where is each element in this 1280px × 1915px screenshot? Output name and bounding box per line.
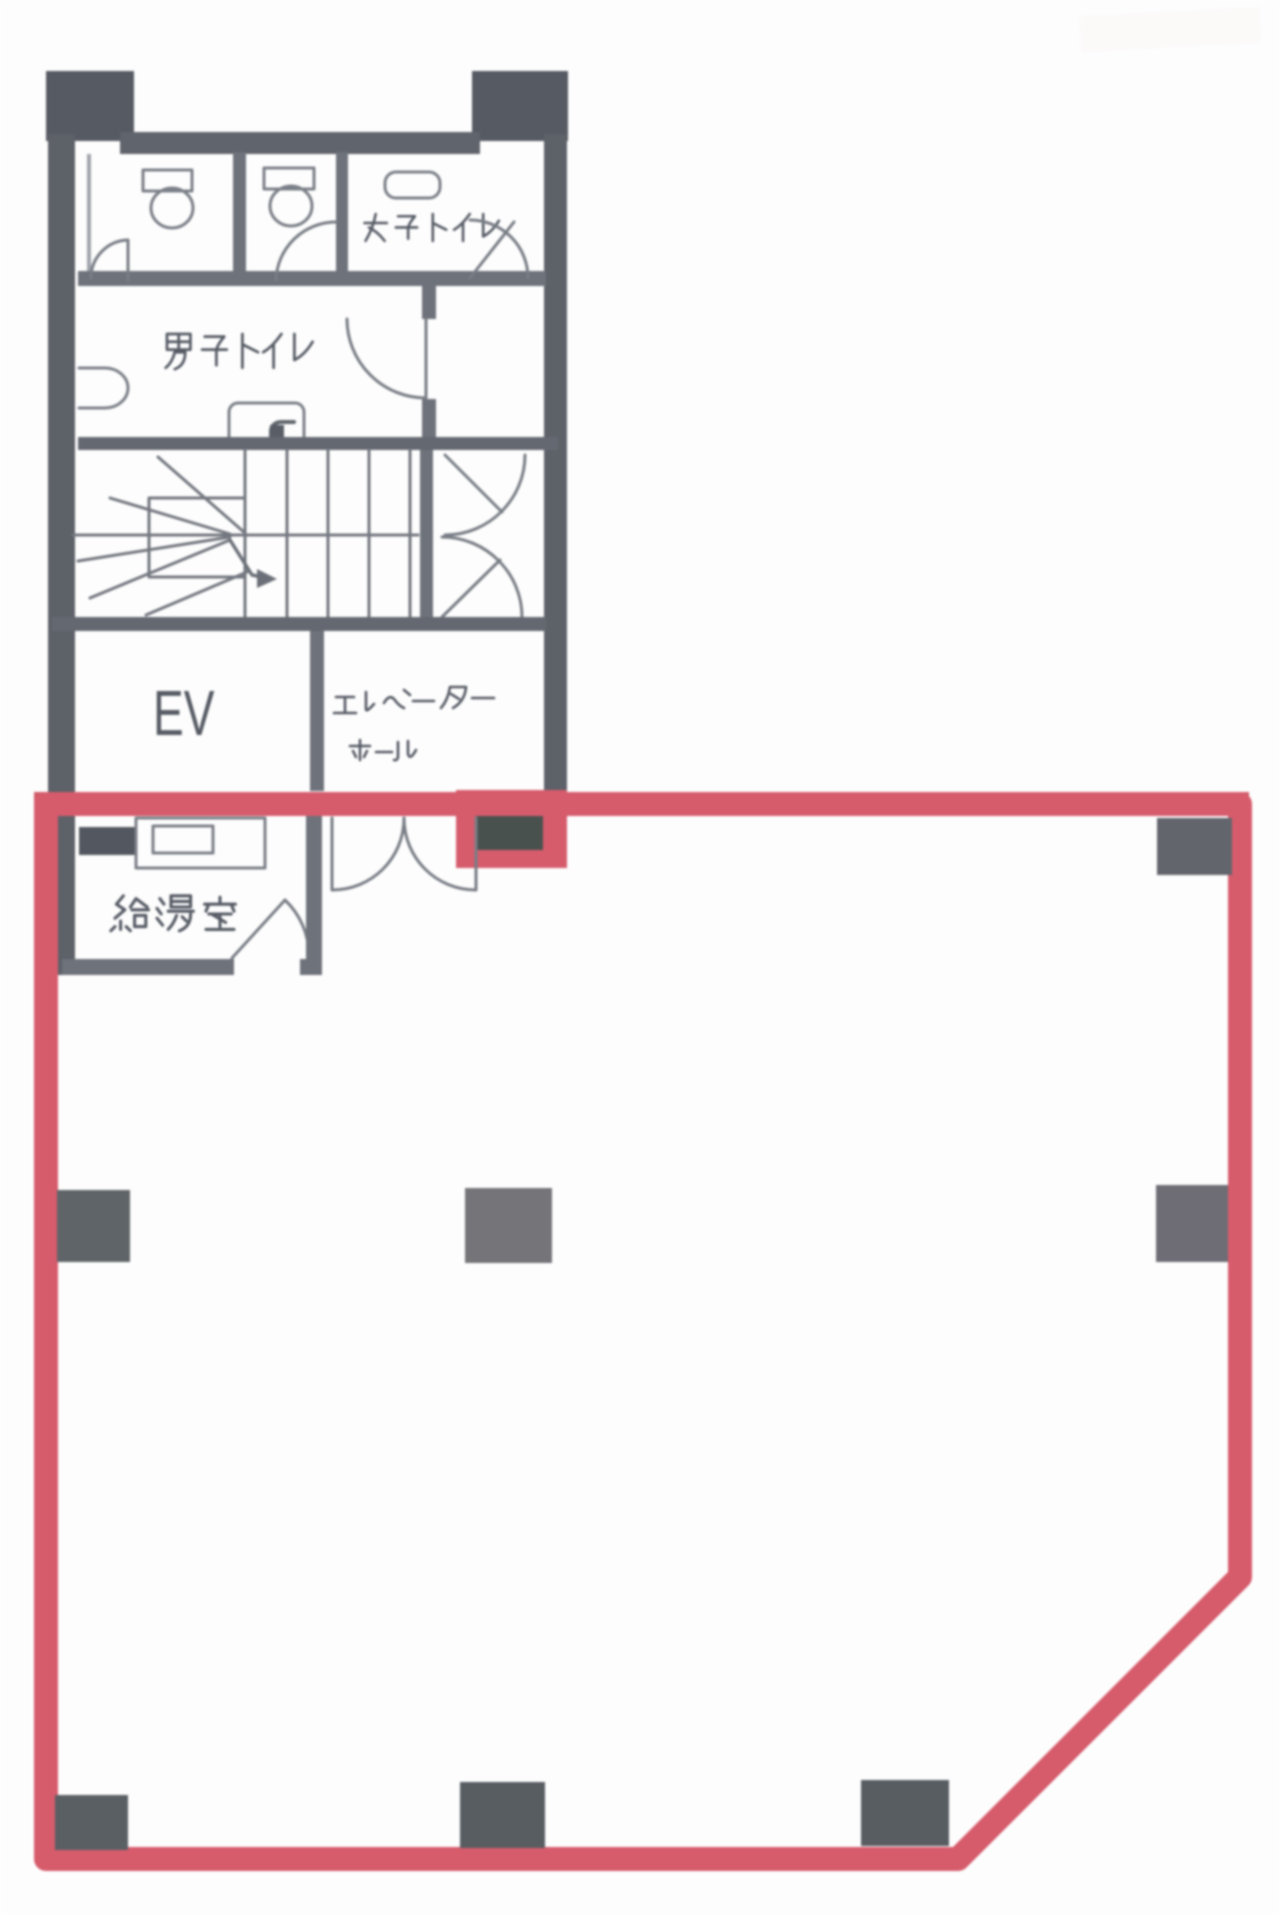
svg-text:EV: EV [153,678,214,749]
